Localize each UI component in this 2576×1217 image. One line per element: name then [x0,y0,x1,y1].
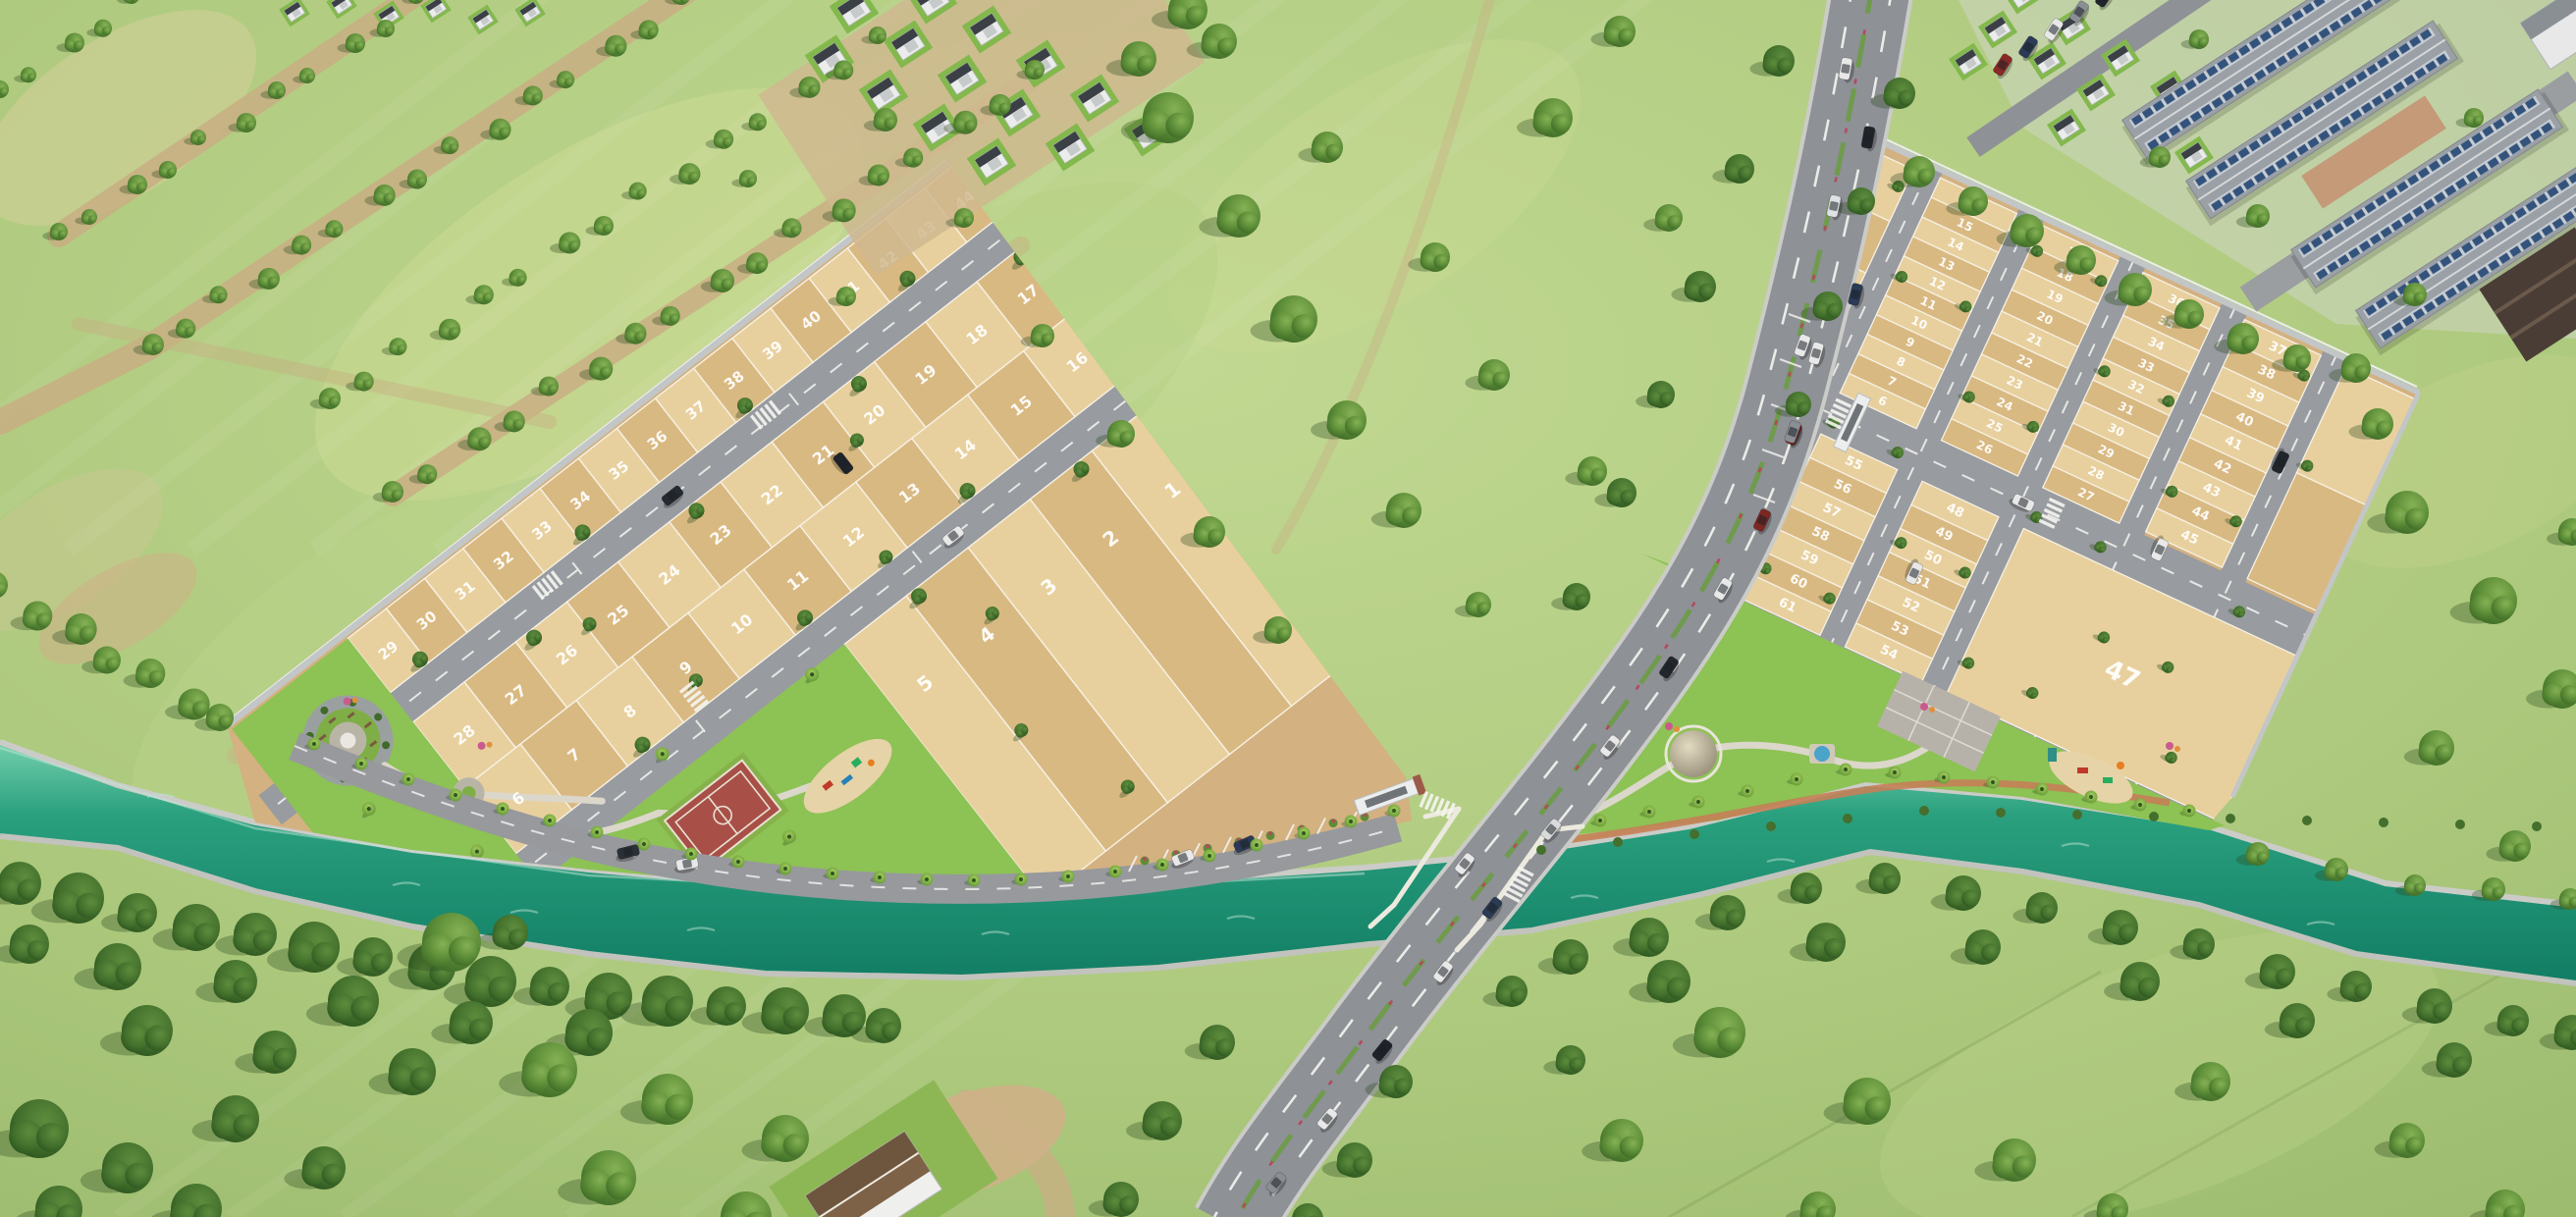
water-feature [1809,744,1835,764]
site-plan-scene: 2930313233343536373839404142434428272625… [0,0,2576,1217]
masterplan-aerial-render: 2930313233343536373839404142434428272625… [0,0,2576,1217]
dome-pavilion [1666,726,1721,781]
tree [0,862,41,905]
